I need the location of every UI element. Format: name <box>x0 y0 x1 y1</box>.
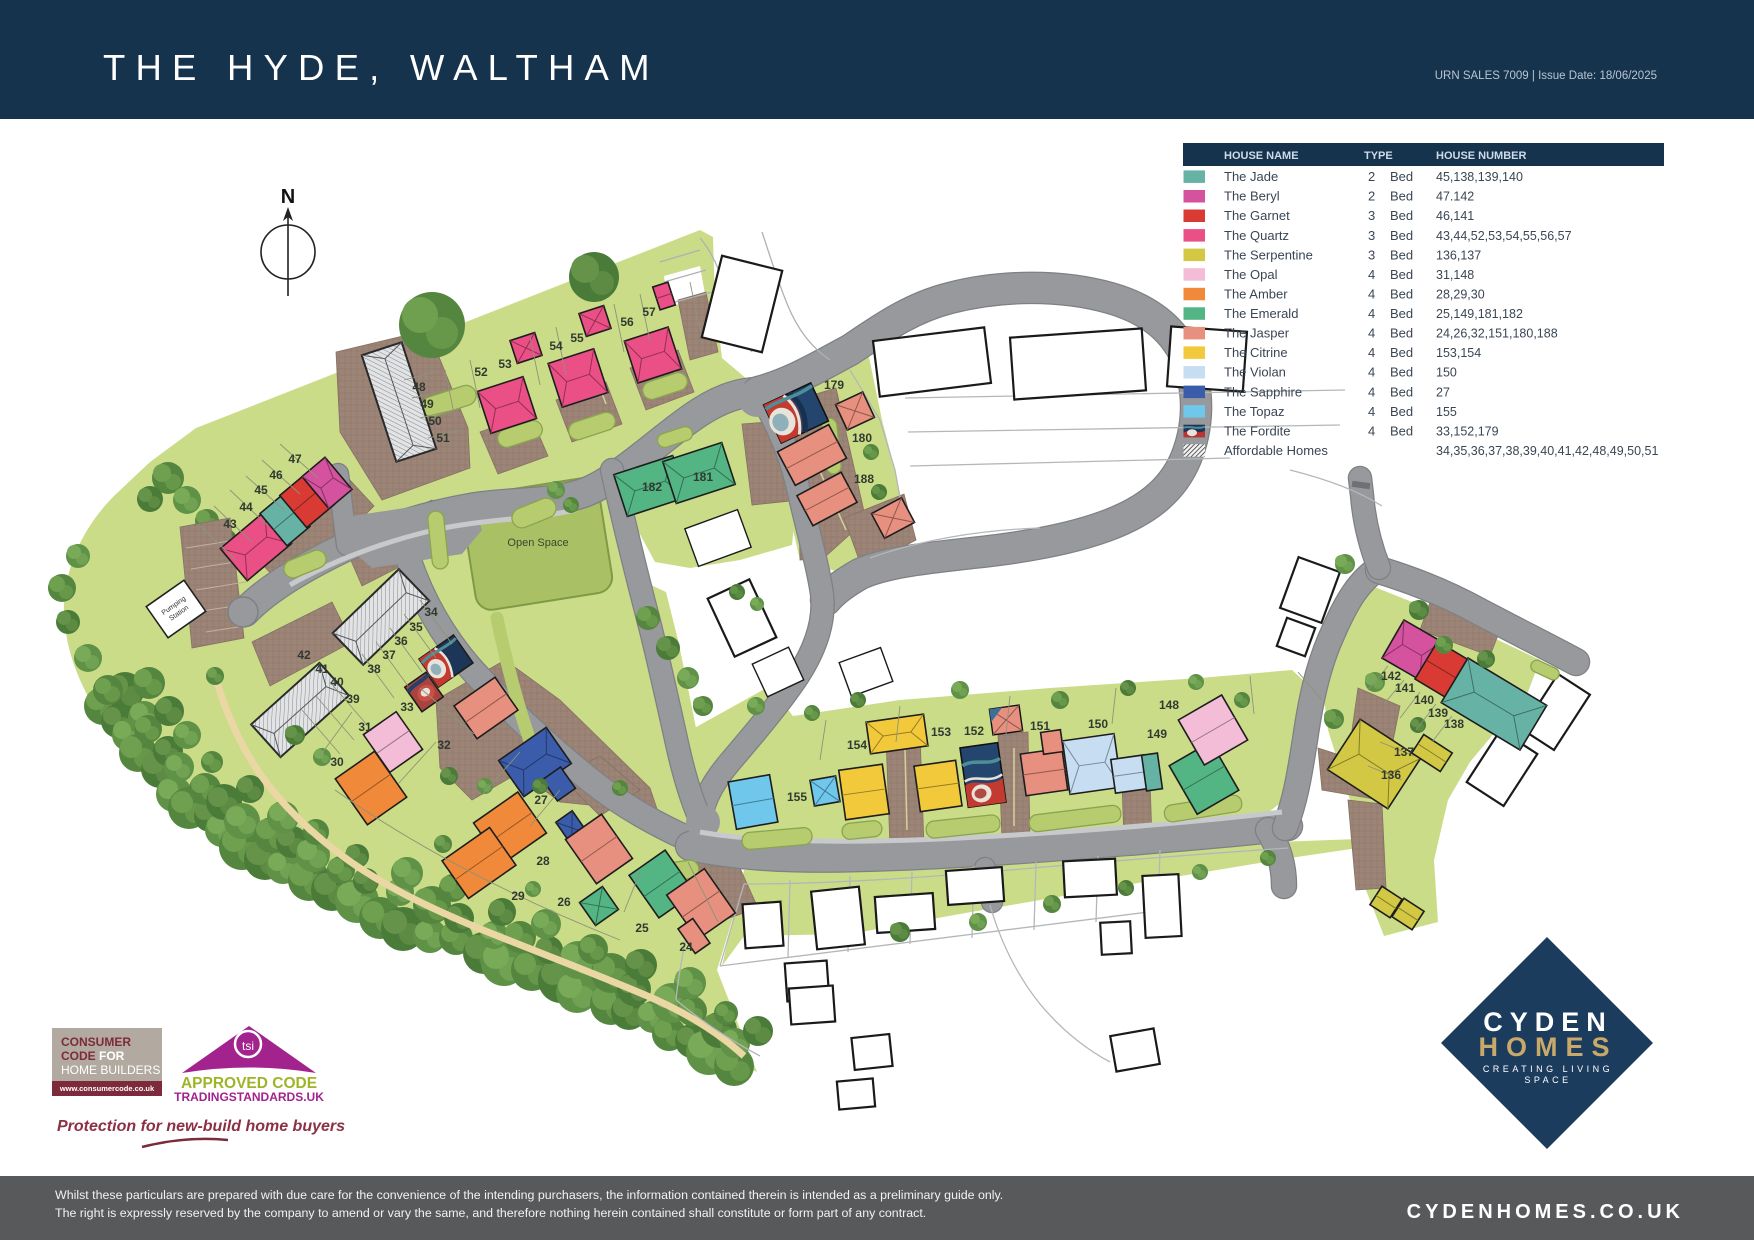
svg-text:33: 33 <box>400 700 414 714</box>
svg-text:www.consumercode.co.uk: www.consumercode.co.uk <box>59 1084 155 1093</box>
svg-text:The right is expressly reserve: The right is expressly reserved by the c… <box>55 1206 926 1220</box>
svg-text:URN SALES 7009 | Issue Date: 1: URN SALES 7009 | Issue Date: 18/06/2025 <box>1435 70 1657 82</box>
svg-text:138: 138 <box>1444 717 1464 731</box>
svg-text:38: 38 <box>367 662 381 676</box>
svg-text:25,149,181,182: 25,149,181,182 <box>1436 307 1523 321</box>
svg-text:46,141: 46,141 <box>1436 209 1474 223</box>
svg-text:37: 37 <box>382 648 396 662</box>
svg-text:152: 152 <box>964 724 984 738</box>
svg-text:47.142: 47.142 <box>1436 190 1474 204</box>
svg-text:149: 149 <box>1147 727 1167 741</box>
svg-text:Bed: Bed <box>1390 423 1413 438</box>
svg-text:The Jade: The Jade <box>1224 169 1278 184</box>
svg-text:155: 155 <box>1436 405 1457 419</box>
svg-text:HOUSE NUMBER: HOUSE NUMBER <box>1436 150 1527 162</box>
svg-text:27: 27 <box>1436 385 1450 399</box>
svg-text:50: 50 <box>428 414 442 428</box>
svg-text:Whilst these particulars are p: Whilst these particulars are prepared wi… <box>55 1188 1003 1202</box>
svg-text:TRADINGSTANDARDS.UK: TRADINGSTANDARDS.UK <box>174 1090 324 1104</box>
svg-text:180: 180 <box>852 431 872 445</box>
svg-text:THE HYDE, WALTHAM: THE HYDE, WALTHAM <box>103 47 660 88</box>
svg-text:151: 151 <box>1030 719 1050 733</box>
svg-text:Bed: Bed <box>1390 228 1413 243</box>
svg-text:Bed: Bed <box>1390 384 1413 399</box>
svg-text:150: 150 <box>1436 366 1457 380</box>
svg-text:45,138,139,140: 45,138,139,140 <box>1436 170 1523 184</box>
svg-text:4: 4 <box>1368 267 1375 282</box>
svg-text:42: 42 <box>297 648 311 662</box>
svg-text:The Beryl: The Beryl <box>1224 189 1280 204</box>
svg-text:Bed: Bed <box>1390 306 1413 321</box>
svg-text:Bed: Bed <box>1390 365 1413 380</box>
svg-text:4: 4 <box>1368 404 1375 419</box>
svg-text:The Fordite: The Fordite <box>1224 423 1290 438</box>
svg-text:136: 136 <box>1381 768 1401 782</box>
svg-text:The Serpentine: The Serpentine <box>1224 247 1313 262</box>
svg-text:54: 54 <box>549 339 563 353</box>
svg-text:153,154: 153,154 <box>1436 346 1481 360</box>
svg-text:43: 43 <box>223 517 237 531</box>
svg-text:29: 29 <box>511 889 525 903</box>
svg-text:Bed: Bed <box>1390 267 1413 282</box>
svg-text:155: 155 <box>787 790 807 804</box>
svg-text:The Topaz: The Topaz <box>1224 404 1284 419</box>
svg-text:CODE FOR: CODE FOR <box>61 1049 125 1063</box>
svg-text:41: 41 <box>315 662 329 676</box>
svg-text:49: 49 <box>420 397 434 411</box>
svg-text:40: 40 <box>330 675 344 689</box>
svg-text:136,137: 136,137 <box>1436 248 1481 262</box>
svg-text:4: 4 <box>1368 326 1375 341</box>
svg-text:3: 3 <box>1368 228 1375 243</box>
svg-text:4: 4 <box>1368 423 1375 438</box>
svg-text:Bed: Bed <box>1390 326 1413 341</box>
svg-text:53: 53 <box>498 357 512 371</box>
svg-text:SPACE: SPACE <box>1524 1075 1571 1085</box>
svg-text:Bed: Bed <box>1390 345 1413 360</box>
svg-text:137: 137 <box>1394 745 1414 759</box>
svg-text:The Garnet: The Garnet <box>1224 208 1290 223</box>
svg-text:34: 34 <box>424 605 438 619</box>
svg-text:The Citrine: The Citrine <box>1224 345 1288 360</box>
svg-text:52: 52 <box>474 365 488 379</box>
svg-text:181: 181 <box>693 470 713 484</box>
svg-text:CREATING LIVING: CREATING LIVING <box>1483 1064 1613 1074</box>
svg-text:44: 44 <box>239 500 253 514</box>
svg-text:35: 35 <box>409 620 423 634</box>
svg-text:The Amber: The Amber <box>1224 287 1288 302</box>
svg-text:141: 141 <box>1395 681 1415 695</box>
svg-text:HOUSE NAME: HOUSE NAME <box>1224 150 1299 162</box>
svg-text:Bed: Bed <box>1390 247 1413 262</box>
svg-text:27: 27 <box>534 793 548 807</box>
svg-text:182: 182 <box>642 480 662 494</box>
svg-text:56: 56 <box>620 315 634 329</box>
svg-text:32: 32 <box>437 738 451 752</box>
svg-text:N: N <box>281 186 295 208</box>
svg-text:CONSUMER: CONSUMER <box>61 1035 131 1049</box>
svg-text:Affordable Homes: Affordable Homes <box>1224 443 1328 458</box>
svg-text:The Emerald: The Emerald <box>1224 306 1298 321</box>
svg-text:3: 3 <box>1368 208 1375 223</box>
svg-text:Bed: Bed <box>1390 208 1413 223</box>
svg-text:179: 179 <box>824 378 844 392</box>
svg-text:The Opal: The Opal <box>1224 267 1278 282</box>
svg-text:tsi: tsi <box>242 1039 254 1053</box>
svg-text:Bed: Bed <box>1390 287 1413 302</box>
svg-text:4: 4 <box>1368 365 1375 380</box>
svg-text:Open Space: Open Space <box>507 537 568 549</box>
svg-text:31,148: 31,148 <box>1436 268 1474 282</box>
svg-text:4: 4 <box>1368 306 1375 321</box>
svg-text:28,29,30: 28,29,30 <box>1436 288 1485 302</box>
svg-text:Bed: Bed <box>1390 189 1413 204</box>
svg-text:28: 28 <box>536 854 550 868</box>
svg-text:51: 51 <box>436 431 450 445</box>
svg-text:33,152,179: 33,152,179 <box>1436 424 1499 438</box>
svg-text:153: 153 <box>931 725 951 739</box>
svg-text:4: 4 <box>1368 287 1375 302</box>
svg-text:57: 57 <box>642 305 656 319</box>
svg-text:CYDENHOMES.CO.UK: CYDENHOMES.CO.UK <box>1407 1201 1684 1223</box>
svg-text:43,44,52,53,54,55,56,57: 43,44,52,53,54,55,56,57 <box>1436 229 1572 243</box>
svg-text:140: 140 <box>1414 693 1434 707</box>
svg-text:30: 30 <box>330 755 344 769</box>
svg-text:The Quartz: The Quartz <box>1224 228 1289 243</box>
svg-text:Protection for new-build home: Protection for new-build home buyers <box>57 1118 345 1135</box>
svg-text:150: 150 <box>1088 717 1108 731</box>
svg-text:The Sapphire: The Sapphire <box>1224 384 1302 399</box>
svg-text:39: 39 <box>346 692 360 706</box>
svg-text:148: 148 <box>1159 698 1179 712</box>
svg-text:TYPE: TYPE <box>1364 150 1393 162</box>
svg-text:154: 154 <box>847 738 867 752</box>
svg-text:24,26,32,151,180,188: 24,26,32,151,180,188 <box>1436 327 1558 341</box>
svg-text:47: 47 <box>288 452 302 466</box>
svg-text:26: 26 <box>557 895 571 909</box>
svg-text:46: 46 <box>269 468 283 482</box>
svg-text:The Violan: The Violan <box>1224 365 1286 380</box>
svg-text:188: 188 <box>854 472 874 486</box>
svg-text:34,35,36,37,38,39,40,41,42,48,: 34,35,36,37,38,39,40,41,42,48,49,50,51 <box>1436 444 1658 458</box>
svg-text:45: 45 <box>254 483 268 497</box>
svg-text:2: 2 <box>1368 169 1375 184</box>
svg-text:Bed: Bed <box>1390 404 1413 419</box>
svg-text:31: 31 <box>358 720 372 734</box>
svg-text:3: 3 <box>1368 247 1375 262</box>
svg-text:36: 36 <box>394 634 408 648</box>
svg-text:2: 2 <box>1368 189 1375 204</box>
svg-text:48: 48 <box>412 380 426 394</box>
svg-text:HOMES: HOMES <box>1478 1032 1617 1062</box>
svg-text:25: 25 <box>635 921 649 935</box>
svg-text:4: 4 <box>1368 345 1375 360</box>
svg-text:24: 24 <box>679 940 693 954</box>
svg-text:The Jasper: The Jasper <box>1224 326 1290 341</box>
svg-text:Bed: Bed <box>1390 169 1413 184</box>
svg-text:HOME BUILDERS: HOME BUILDERS <box>61 1063 160 1077</box>
svg-text:55: 55 <box>570 331 584 345</box>
svg-text:4: 4 <box>1368 384 1375 399</box>
